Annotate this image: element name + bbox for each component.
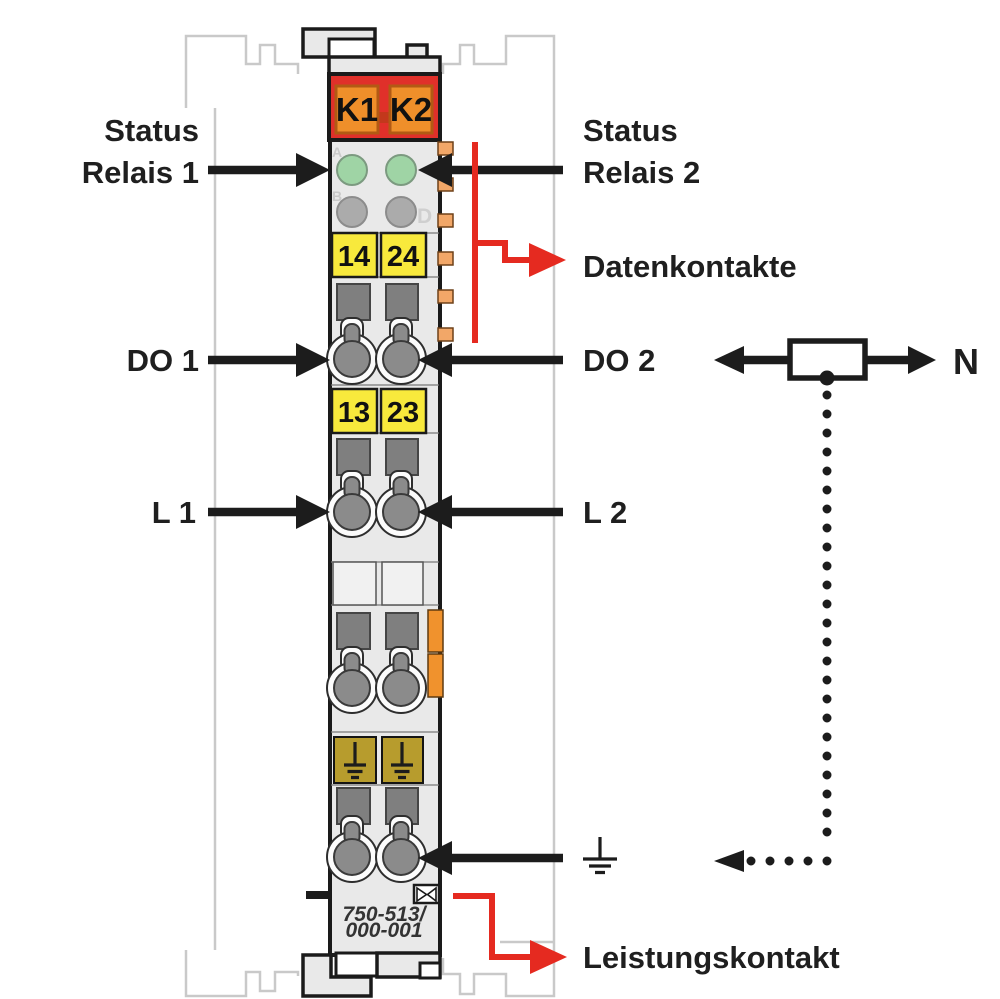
blank-marker-1	[333, 562, 376, 605]
terminal-label-14: 14	[338, 241, 370, 273]
load-tap-dot	[820, 371, 835, 386]
clamp-terminal	[334, 341, 370, 377]
label-l1: L 1	[152, 495, 196, 530]
data-contact-tab	[438, 252, 453, 265]
bottom-foot-step	[420, 963, 440, 978]
push-button-3b	[386, 613, 418, 649]
gray-led-2	[386, 197, 416, 227]
label-status-right: Status	[583, 113, 678, 148]
part-number-line2: 000-001	[345, 919, 422, 942]
label-neutral: N	[953, 341, 979, 382]
push-button-3a	[337, 613, 370, 649]
clamp-terminal	[383, 839, 419, 875]
terminal-label-23: 23	[387, 397, 419, 429]
relay-header: K1 K2	[329, 74, 440, 140]
clamp-terminal	[334, 670, 370, 706]
data-contact-tab	[438, 290, 453, 303]
blank-marker-2	[382, 562, 423, 605]
wiring-diagram-page: K1 K2 A B D 14 24 13	[0, 0, 1000, 999]
push-button-2a	[337, 439, 370, 475]
label-datenkontakte: Datenkontakte	[583, 249, 797, 284]
label-do2: DO 2	[583, 343, 655, 378]
gray-led-1	[337, 197, 367, 227]
green-led-2	[386, 155, 416, 185]
release-latch	[428, 610, 443, 697]
power-contact-icon	[414, 885, 439, 903]
relay-k1-label: K1	[336, 91, 378, 128]
push-button-2b	[386, 439, 418, 475]
data-contact-tab	[438, 328, 453, 341]
latch-lower	[428, 654, 443, 697]
push-button-1b	[386, 284, 418, 320]
latch-upper	[428, 610, 443, 652]
green-led-1	[337, 155, 367, 185]
label-l2: L 2	[583, 495, 627, 530]
bottom-latch-dash	[306, 891, 331, 899]
led-letter-a: A	[332, 144, 342, 160]
part-number: 750-513/ 000-001	[343, 903, 428, 942]
terminal-label-13: 13	[338, 397, 370, 429]
clamp-terminal	[383, 494, 419, 530]
clamp-terminal	[334, 839, 370, 875]
data-contact-tab	[438, 142, 453, 155]
clamp-terminal	[383, 341, 419, 377]
label-relais-1: Relais 1	[82, 155, 199, 190]
background	[0, 0, 1000, 999]
label-relais-2: Relais 2	[583, 155, 700, 190]
relay-k2-label: K2	[390, 91, 432, 128]
clamp-terminal	[334, 494, 370, 530]
terminal-label-24: 24	[387, 241, 419, 273]
led-letter-d: D	[417, 205, 432, 228]
wiring-diagram: K1 K2 A B D 14 24 13	[0, 0, 1000, 999]
push-button-1a	[337, 284, 370, 320]
data-contact-tab	[438, 214, 453, 227]
top-foot-notch	[329, 39, 374, 57]
label-do1: DO 1	[127, 343, 199, 378]
label-status-left: Status	[104, 113, 199, 148]
clamp-terminal	[383, 670, 419, 706]
bottom-foot-notch	[336, 953, 378, 976]
label-leistungskontakt: Leistungskontakt	[583, 940, 840, 975]
